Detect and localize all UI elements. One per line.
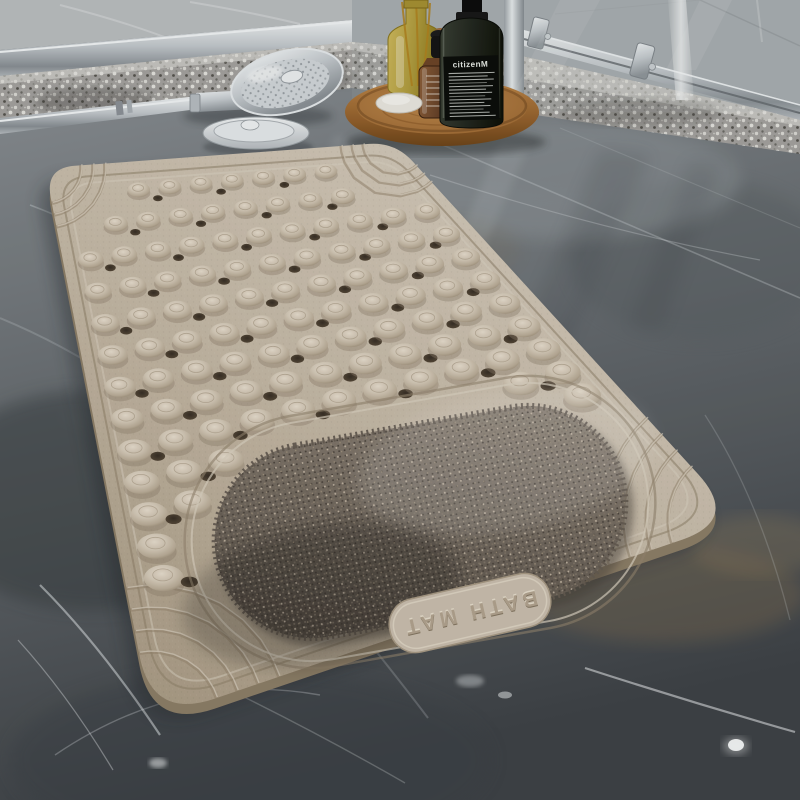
bathroom-scene: citizenM BATH MAT BATH MAT BATH MA (0, 0, 800, 800)
scene-root: citizenM BATH MAT BATH MAT BATH MA (0, 0, 800, 800)
vignette (0, 0, 800, 800)
